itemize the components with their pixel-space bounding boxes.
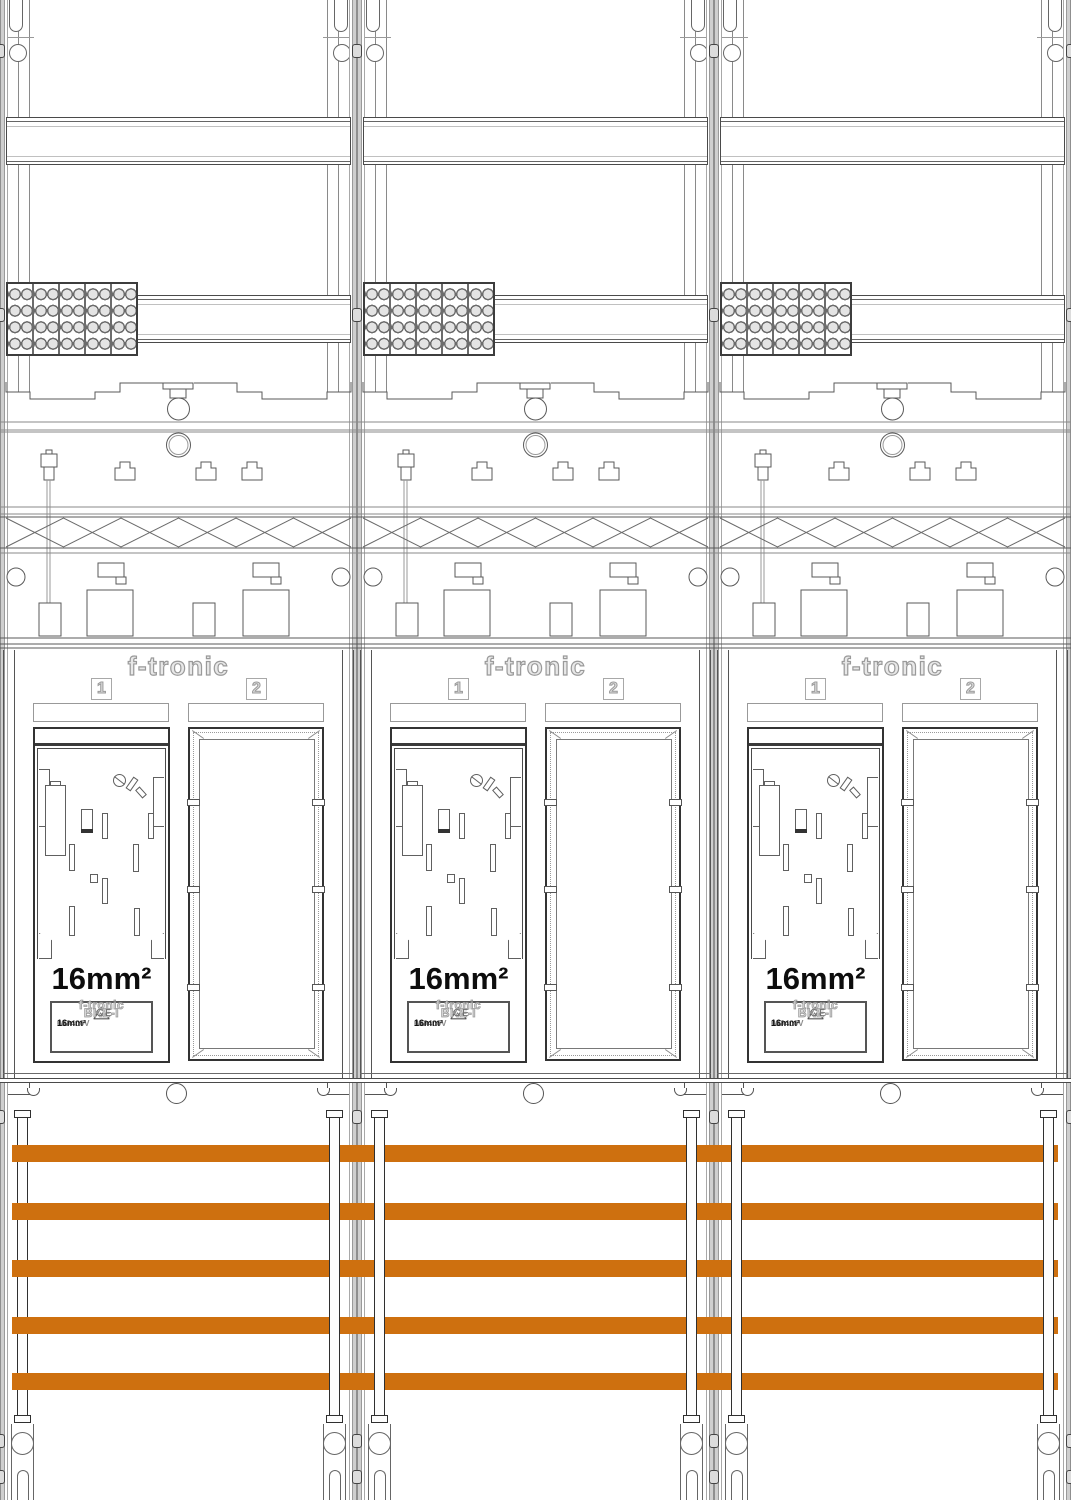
terminal-segment: [824, 284, 850, 354]
bevel-corner-line: [549, 1049, 561, 1058]
bottom-hole-right: [323, 1432, 346, 1455]
seam-clip: [352, 308, 362, 322]
center-boss: [167, 433, 191, 457]
meter-field-number-2: 2: [960, 678, 981, 700]
profile-edge-line: [363, 37, 391, 38]
seam-clip: [0, 1434, 5, 1448]
bottom-slot-right: [1043, 1470, 1055, 1500]
window-tab: [1026, 799, 1039, 806]
breaker-cutouts: [39, 590, 289, 636]
terminal-segment: [8, 284, 32, 354]
din-rail-upper: [6, 117, 351, 165]
module-slot: [148, 813, 154, 839]
busbar: [12, 1373, 1058, 1390]
bevel-corner-line: [1022, 730, 1034, 739]
plate-cross-section: 16mm²: [771, 1018, 800, 1028]
module-slot: [816, 878, 822, 904]
module-slot: [102, 878, 108, 904]
keyhole-slot-left: [723, 0, 737, 32]
field-border-left: [717, 650, 729, 1078]
name-plate-field-2: [188, 703, 324, 722]
keyhole-slot-right: [1048, 0, 1062, 32]
window-tab: [187, 799, 200, 806]
field-border-right: [1056, 650, 1068, 1078]
module-slot: [848, 908, 854, 936]
molding-profile: [720, 382, 1065, 420]
cross-brace-truss: [357, 517, 714, 548]
name-plate-field-1: [33, 703, 169, 722]
device-rating-plate: f-tronic BKE-I CE AC 400V 63A 16mm²: [50, 1001, 153, 1053]
terminal-segment: [389, 284, 415, 354]
terminal-segment: [441, 284, 467, 354]
bevel-corner-line: [192, 1049, 204, 1058]
module-slot: [134, 908, 140, 936]
module-slot: [459, 878, 465, 904]
terminal-segment: [772, 284, 798, 354]
window-tab: [901, 886, 914, 893]
seam-clip: [352, 44, 362, 58]
brand-logo-text: f-tronic: [714, 651, 1071, 682]
breaker-cutouts: [396, 590, 646, 636]
cable-plug: [41, 450, 57, 480]
meter-size-area: 16mm² f-tronic BKE-I CE AC 400V 63A: [749, 959, 882, 1059]
breaker-cutouts: [753, 590, 1003, 636]
cross-section-label: 16mm²: [749, 961, 882, 997]
module-notch: [153, 777, 164, 827]
bevel-corner-line: [192, 730, 204, 739]
center-boss: [881, 433, 905, 457]
module-slot: [69, 906, 75, 936]
meter-field-number-1: 1: [805, 678, 826, 700]
meter-window-empty: [545, 727, 681, 1061]
bevel-corner-line: [549, 730, 561, 739]
cable-plug: [755, 450, 771, 480]
terminal-segment: [32, 284, 58, 354]
name-plate-field-1: [390, 703, 526, 722]
din-rail-upper: [720, 117, 1065, 165]
side-hole-right: [1046, 568, 1064, 586]
busbar: [12, 1317, 1058, 1334]
keyhole-slot-right: [691, 0, 705, 32]
window-tab: [187, 984, 200, 991]
seam-clip: [709, 1434, 719, 1448]
cross-section-label: 16mm²: [35, 961, 168, 997]
module-clip: [492, 786, 504, 798]
cable-plug: [398, 450, 414, 480]
seam-clip: [709, 1110, 719, 1124]
ledge-notch: [384, 1088, 397, 1096]
side-hole-right: [689, 568, 707, 586]
field-border-left: [3, 650, 15, 1078]
ce-mark: CE: [96, 1008, 114, 1019]
cross-section-label: 16mm²: [392, 961, 525, 997]
terminal-segment: [58, 284, 84, 354]
meter-window-occupied: 16mm² f-tronic BKE-I CE AC 400V 63A: [33, 727, 170, 1063]
bevel-corner-line: [308, 730, 320, 739]
keyhole-slot-left: [366, 0, 380, 32]
compartment-divider: [0, 1078, 357, 1083]
window-tab: [312, 984, 325, 991]
bevel-corner-line: [1022, 1049, 1034, 1058]
module-slot: [783, 844, 789, 871]
module-terminal-bank: [45, 785, 66, 856]
module-slot: [459, 813, 465, 839]
bevel-corner-line: [906, 730, 918, 739]
module-slot: [90, 874, 98, 883]
meter-board-drawing: f-tronic 1 2: [0, 0, 1071, 1500]
module-slot: [783, 906, 789, 936]
bottom-slot-left: [731, 1470, 743, 1500]
bevel-corner-line: [308, 1049, 320, 1058]
module-notch: [867, 777, 878, 827]
screw-icon: [470, 774, 483, 787]
molding-profile: [363, 382, 708, 420]
profile-edge-line: [323, 37, 351, 38]
seam-clip: [0, 1110, 5, 1124]
window-tab: [544, 984, 557, 991]
bottom-hole-right: [1037, 1432, 1060, 1455]
cable-entry-cutouts: [472, 462, 619, 480]
module-corner-cut: [508, 933, 521, 959]
module-corner-cut: [396, 933, 409, 959]
keyhole-slot-left: [9, 0, 23, 32]
seam-clip: [1066, 44, 1071, 58]
side-hole-left: [364, 568, 382, 586]
module-terminal-bank: [759, 785, 780, 856]
bevel-corner-line: [665, 730, 677, 739]
meter-mounting-module: [751, 748, 880, 962]
terminal-segment: [467, 284, 493, 354]
terminal-block: [363, 282, 495, 356]
meter-window-empty: [902, 727, 1038, 1061]
module-slot: [426, 844, 432, 871]
field-border-left: [360, 650, 372, 1078]
window-tab: [1026, 984, 1039, 991]
fixing-hole: [523, 1083, 544, 1104]
module-relay: [438, 809, 450, 833]
profile-edge-line: [720, 37, 748, 38]
ledge-notch: [27, 1088, 40, 1096]
seam-clip: [0, 1470, 5, 1484]
meter-window-occupied: 16mm² f-tronic BKE-I CE AC 400V 63A: [390, 727, 527, 1063]
meter-field-number-2: 2: [246, 678, 267, 700]
cross-brace-truss: [0, 517, 357, 548]
center-boss: [524, 433, 548, 457]
mounting-hole-left: [366, 44, 384, 62]
mid-section-drawing: [0, 378, 357, 650]
busbar-support-right: [686, 1110, 697, 1423]
profile-edge-line: [6, 37, 34, 38]
module-slot: [490, 844, 496, 872]
mounting-clips: [812, 563, 995, 584]
bottom-slot-right: [329, 1470, 341, 1500]
module-corner-cut: [151, 933, 164, 959]
side-hole-left: [721, 568, 739, 586]
window-tab: [544, 886, 557, 893]
seam-clip: [352, 1434, 362, 1448]
field-border-right: [342, 650, 354, 1078]
window-tab: [312, 886, 325, 893]
profile-edge-line: [680, 37, 708, 38]
module-slot: [847, 844, 853, 872]
compartment-divider: [357, 1078, 714, 1083]
cross-brace-truss: [714, 517, 1071, 548]
bevel-corner-line: [665, 1049, 677, 1058]
screw-icon: [827, 774, 840, 787]
module-notch: [510, 777, 521, 827]
cabinet-bottom-line: [717, 1073, 1068, 1074]
side-hole-right: [332, 568, 350, 586]
module-slot: [69, 844, 75, 871]
busbar: [12, 1260, 1058, 1277]
window-tab: [187, 886, 200, 893]
module-slot: [505, 813, 511, 839]
meter-window-occupied: 16mm² f-tronic BKE-I CE AC 400V 63A: [747, 727, 884, 1063]
busbar-support-right: [329, 1110, 340, 1423]
meter-size-area: 16mm² f-tronic BKE-I CE AC 400V 63A: [35, 959, 168, 1059]
mounting-clips: [98, 563, 281, 584]
module-tab: [50, 781, 61, 786]
cabinet-bottom-line: [3, 1073, 354, 1074]
keyhole-slot-right: [334, 0, 348, 32]
meter-mounting-module: [37, 748, 166, 962]
field-border-right: [699, 650, 711, 1078]
fixing-hole: [880, 1083, 901, 1104]
module-tab: [764, 781, 775, 786]
mid-section-drawing: [357, 378, 714, 650]
module-slot: [491, 908, 497, 936]
fixing-hole: [166, 1083, 187, 1104]
module-slot: [816, 813, 822, 839]
window-tab: [669, 799, 682, 806]
module-terminal-bank: [402, 785, 423, 856]
module-relay: [795, 809, 807, 833]
module-slot: [447, 874, 455, 883]
ce-mark: CE: [453, 1008, 471, 1019]
bottom-hole-left: [11, 1432, 34, 1455]
din-rail-upper: [363, 117, 708, 165]
plate-cross-section: 16mm²: [57, 1018, 86, 1028]
terminal-block: [720, 282, 852, 356]
cable-entry-cutouts: [115, 462, 262, 480]
module-clip: [135, 786, 147, 798]
name-plate-field-2: [545, 703, 681, 722]
seam-clip: [1066, 1110, 1071, 1124]
seam-clip: [0, 308, 5, 322]
module-corner-cut: [39, 933, 52, 959]
window-bevel-frame: [556, 739, 672, 1049]
window-tab: [901, 984, 914, 991]
module-tab: [407, 781, 418, 786]
plate-cross-section: 16mm²: [414, 1018, 443, 1028]
terminal-segment: [110, 284, 136, 354]
module-slot: [133, 844, 139, 872]
terminal-segment: [415, 284, 441, 354]
window-tab: [1026, 886, 1039, 893]
terminal-segment: [746, 284, 772, 354]
module-slot: [426, 906, 432, 936]
side-hole-left: [7, 568, 25, 586]
bottom-hole-left: [368, 1432, 391, 1455]
mounting-clips: [455, 563, 638, 584]
terminal-segment: [798, 284, 824, 354]
module-clip: [849, 786, 861, 798]
meter-mounting-module: [394, 748, 523, 962]
brand-logo-text: f-tronic: [357, 651, 714, 682]
bottom-slot-left: [17, 1470, 29, 1500]
busbar: [12, 1145, 1058, 1162]
bottom-hole-right: [680, 1432, 703, 1455]
meter-size-area: 16mm² f-tronic BKE-I CE AC 400V 63A: [392, 959, 525, 1059]
window-tab: [544, 799, 557, 806]
window-bevel-frame: [913, 739, 1029, 1049]
ledge-notch: [741, 1088, 754, 1096]
window-tab: [669, 886, 682, 893]
meter-field-number-2: 2: [603, 678, 624, 700]
meter-window-empty: [188, 727, 324, 1061]
meter-window-cap: [35, 729, 168, 746]
compartment-divider: [714, 1078, 1071, 1083]
mid-section-drawing: [714, 378, 1071, 650]
busbar: [12, 1203, 1058, 1220]
seam-clip: [1066, 1470, 1071, 1484]
module-corner-cut: [753, 933, 766, 959]
seam-clip: [709, 1470, 719, 1484]
terminal-segment: [84, 284, 110, 354]
seam-clip: [352, 1470, 362, 1484]
busbar-support-left: [374, 1110, 385, 1423]
module-slot: [804, 874, 812, 883]
busbar-support-left: [731, 1110, 742, 1423]
seam-clip: [709, 308, 719, 322]
module-relay: [81, 809, 93, 833]
bottom-hole-left: [725, 1432, 748, 1455]
module-slot: [862, 813, 868, 839]
seam-clip: [1066, 308, 1071, 322]
profile-edge-line: [1037, 37, 1065, 38]
brand-logo-text: f-tronic: [0, 651, 357, 682]
window-tab: [669, 984, 682, 991]
terminal-segment: [365, 284, 389, 354]
bottom-slot-right: [686, 1470, 698, 1500]
busbar-support-right: [1043, 1110, 1054, 1423]
module-slot: [102, 813, 108, 839]
meter-window-cap: [392, 729, 525, 746]
device-rating-plate: f-tronic BKE-I CE AC 400V 63A 16mm²: [407, 1001, 510, 1053]
terminal-segment: [722, 284, 746, 354]
seam-clip: [709, 44, 719, 58]
seam-clip: [0, 44, 5, 58]
meter-field-number-1: 1: [91, 678, 112, 700]
mounting-hole-left: [723, 44, 741, 62]
meter-window-cap: [749, 729, 882, 746]
screw-icon: [113, 774, 126, 787]
name-plate-field-2: [902, 703, 1038, 722]
window-bevel-frame: [199, 739, 315, 1049]
window-tab: [312, 799, 325, 806]
window-tab: [901, 799, 914, 806]
molding-profile: [6, 382, 351, 420]
seam-clip: [1066, 1434, 1071, 1448]
bevel-corner-line: [906, 1049, 918, 1058]
bottom-slot-left: [374, 1470, 386, 1500]
cable-entry-cutouts: [829, 462, 976, 480]
device-rating-plate: f-tronic BKE-I CE AC 400V 63A 16mm²: [764, 1001, 867, 1053]
cabinet-bottom-line: [360, 1073, 711, 1074]
mounting-hole-left: [9, 44, 27, 62]
terminal-block: [6, 282, 138, 356]
meter-field-number-1: 1: [448, 678, 469, 700]
seam-clip: [352, 1110, 362, 1124]
module-corner-cut: [865, 933, 878, 959]
ce-mark: CE: [810, 1008, 828, 1019]
name-plate-field-1: [747, 703, 883, 722]
